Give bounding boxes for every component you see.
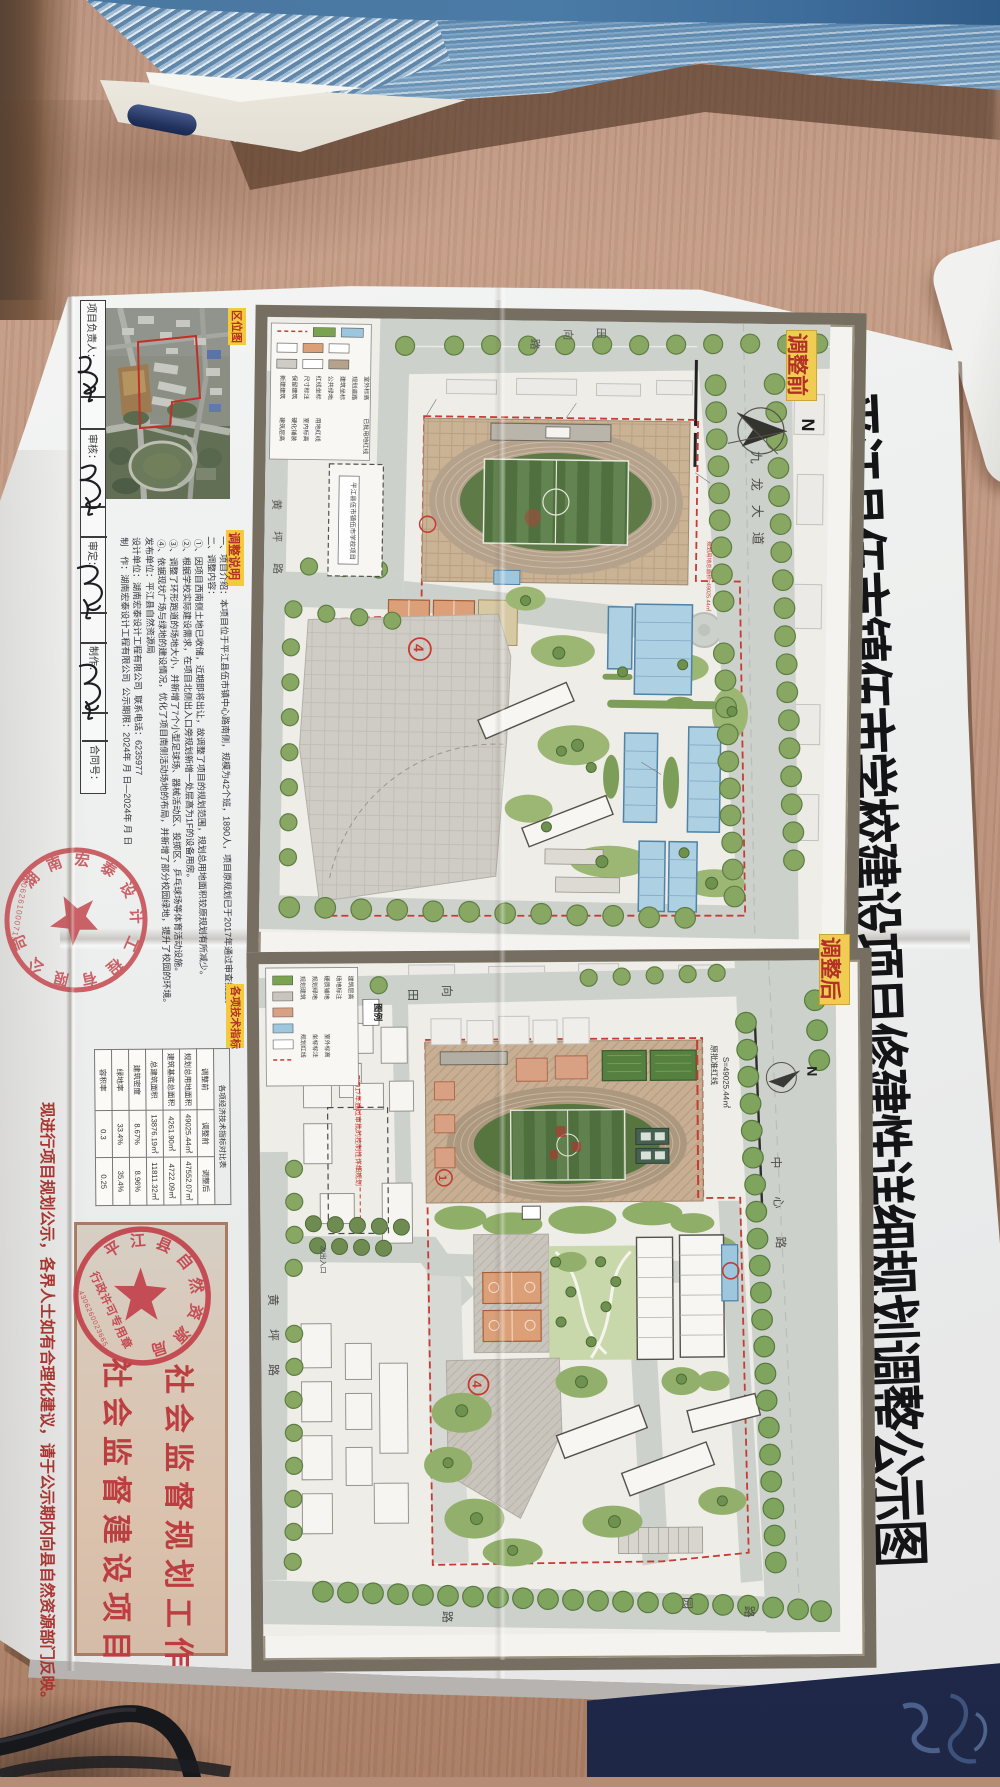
svg-text:九: 九: [748, 451, 763, 464]
svg-text:计: 计: [126, 908, 145, 924]
svg-text:硬质铺地: 硬质铺地: [323, 976, 331, 1000]
svg-text:坪: 坪: [270, 531, 283, 542]
svg-text:次出入口: 次出入口: [319, 1246, 328, 1274]
svg-text:道: 道: [750, 532, 765, 545]
svg-text:路: 路: [440, 1611, 455, 1623]
svg-text:路: 路: [271, 563, 284, 574]
svg-text:心: 心: [771, 1196, 785, 1208]
svg-text:路: 路: [742, 1606, 757, 1618]
svg-text:4: 4: [469, 1381, 484, 1389]
svg-text:4: 4: [411, 644, 427, 652]
svg-text:江: 江: [129, 1232, 146, 1251]
svg-text:黄: 黄: [266, 1294, 280, 1306]
svg-text:大: 大: [750, 505, 765, 518]
svg-text:田: 田: [406, 989, 420, 1001]
svg-text:中: 中: [769, 1156, 784, 1168]
svg-text:场地标注: 场地标注: [335, 976, 343, 1000]
svg-text:向: 向: [440, 985, 455, 997]
svg-text:规划建筑: 规划建筑: [299, 976, 307, 1000]
svg-text:宏: 宏: [74, 851, 91, 870]
svg-text:园: 园: [680, 1597, 694, 1609]
svg-text:路: 路: [266, 1364, 281, 1376]
svg-text:路: 路: [528, 339, 541, 350]
svg-text:规划绿地: 规划绿地: [311, 976, 319, 1000]
svg-text:原批准红线: 原批准红线: [709, 1045, 719, 1085]
svg-text:路: 路: [773, 1236, 788, 1248]
svg-text:N: N: [798, 418, 818, 431]
svg-text:坐标标注: 坐标标注: [311, 1034, 319, 1058]
svg-text:图例: 图例: [373, 1003, 384, 1021]
svg-text:限: 限: [52, 968, 71, 988]
svg-text:N: N: [804, 1066, 820, 1076]
svg-text:规划红线: 规划红线: [299, 1034, 307, 1058]
svg-text:向: 向: [561, 329, 575, 340]
svg-text:坪: 坪: [266, 1329, 280, 1341]
svg-text:田: 田: [594, 327, 606, 338]
svg-text:1: 1: [436, 1175, 448, 1181]
svg-text:黄: 黄: [270, 499, 284, 510]
svg-text:S=49025.44㎡: S=49025.44㎡: [721, 1057, 730, 1108]
svg-text:龙: 龙: [749, 478, 764, 491]
svg-text:有: 有: [80, 968, 99, 989]
svg-text:室外标高: 室外标高: [323, 1034, 331, 1058]
svg-text:建筑层高: 建筑层高: [347, 975, 355, 999]
